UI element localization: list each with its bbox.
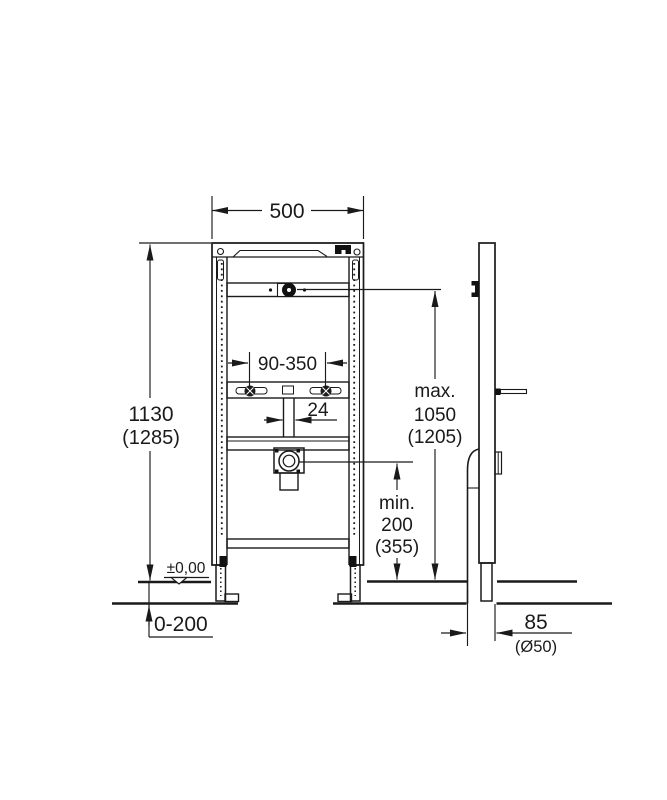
side-wall-bracket: [472, 281, 480, 297]
dim-height-label: 1130: [128, 403, 173, 426]
dim-height-alt-label: (1285): [122, 427, 180, 449]
dim-max-alt-label: (1205): [408, 427, 463, 448]
dim-max-value-label: 1050: [414, 405, 456, 426]
drain-bolt-tr: [297, 449, 301, 453]
left-foot-plate: [225, 594, 239, 602]
dim-min-alt-label: (355): [375, 537, 419, 558]
side-bar: [479, 243, 495, 563]
drain-bolt-bl: [275, 470, 279, 474]
top-rail-label-notch: [342, 250, 346, 254]
dimension-annotations: 500 1130 (1285) 90-350 24 max. 1050 (120…: [122, 196, 572, 656]
floor-lines: [112, 582, 612, 604]
drawing-canvas: 500 1130 (1285) 90-350 24 max. 1050 (120…: [0, 0, 667, 800]
bracket-bolt-right: [321, 386, 332, 397]
mounting-stud-head: [496, 389, 501, 396]
bracket-center-tab: [283, 386, 294, 394]
drain-outlet-inner: [283, 455, 295, 467]
right-leg-clip: [350, 556, 357, 567]
side-drain-pipe: [468, 449, 480, 604]
datum-level-label: ±0,00: [167, 560, 206, 577]
right-foot-plate: [338, 594, 352, 602]
top-rail-hole-left: [218, 249, 224, 255]
side-leg: [481, 563, 492, 601]
side-view-frame: [468, 243, 527, 604]
installation-frame-drawing: 500 1130 (1285) 90-350 24 max. 1050 (120…: [0, 0, 667, 800]
dim-top-width-label: 500: [269, 200, 304, 223]
crossbar-dot-left: [269, 288, 272, 291]
drain-bolt-tl: [275, 449, 279, 453]
dim-max-prefix-label: max.: [414, 381, 455, 402]
drain-outlet-outer: [279, 451, 299, 471]
flush-fitting-center: [287, 288, 291, 292]
left-leg-clip: [220, 556, 227, 567]
front-view-frame: [212, 243, 364, 602]
bracket-bolt-left: [245, 386, 256, 397]
mounting-stud-rod: [501, 390, 527, 394]
dim-bracket-range-label: 90-350: [258, 354, 317, 375]
drain-stub: [280, 473, 298, 490]
dim-min-prefix-label: min.: [379, 493, 415, 514]
top-rail-notch: [233, 251, 327, 258]
bottom-crossbar: [227, 539, 349, 548]
top-rail-hole-right: [354, 249, 360, 255]
dim-wall-distance-label: 85: [524, 611, 547, 634]
dim-drain-diameter-label: (Ø50): [515, 638, 557, 656]
dim-pipe-width-label: 24: [307, 400, 329, 421]
dim-min-value-label: 200: [381, 515, 413, 536]
dim-floor-range-label: 0-200: [154, 613, 208, 636]
